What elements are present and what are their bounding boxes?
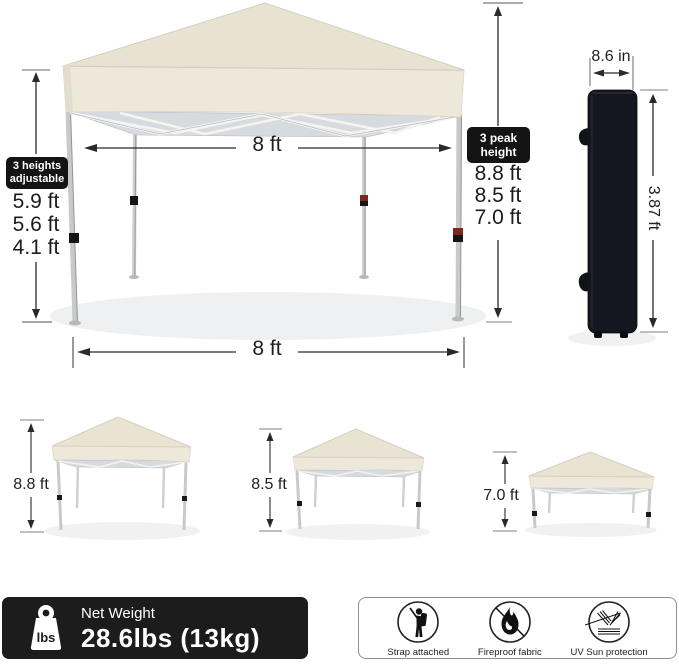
tent-canopy	[63, 3, 464, 70]
small-tent-8-5	[293, 429, 424, 529]
bag-wheel	[594, 331, 602, 338]
uv-reflection-icon	[585, 599, 633, 647]
features-box: Strap attached Fireproof fabric	[358, 597, 677, 659]
feature-label: Fireproof fabric	[478, 648, 542, 658]
canopy-diagram-illustration	[0, 0, 679, 595]
weight-lbs-icon: lbs	[28, 604, 64, 652]
ground-shadows	[44, 292, 657, 540]
net-weight-bar: lbs Net Weight 28.6lbs (13kg)	[2, 597, 308, 659]
feature-label: UV Sun protection	[571, 648, 648, 658]
bag-handle	[579, 272, 589, 291]
strap-person-icon	[394, 599, 442, 647]
leg-adjust-collar-red	[360, 195, 368, 201]
net-weight-title: Net Weight	[81, 605, 260, 622]
peak-height-label: 3 peak height	[467, 127, 530, 163]
feature-strap-attached: Strap attached	[387, 599, 449, 658]
main-tent	[63, 3, 464, 326]
feature-fireproof-fabric: Fireproof fabric	[478, 599, 542, 658]
feature-label: Strap attached	[387, 648, 449, 658]
tent-valance	[63, 66, 464, 117]
small-tent-8-8	[52, 417, 191, 530]
bag-wheel	[620, 331, 628, 338]
carry-bag	[579, 90, 637, 338]
fireproof-flame-icon	[486, 599, 534, 647]
adjustable-height-values: 5.9 ft 5.6 ft 4.1 ft	[1, 190, 71, 259]
bag-width-dimension: 8.6 in	[585, 48, 637, 66]
leg-adjust-collar-red	[453, 228, 463, 235]
small-tent-height-3: 7.0 ft	[477, 487, 525, 505]
svg-text:lbs: lbs	[37, 630, 56, 645]
net-weight-value: 28.6lbs (13kg)	[81, 624, 260, 652]
small-tent-7-0	[529, 452, 654, 528]
width-dimension-top: 8 ft	[237, 133, 297, 156]
small-tent-height-2: 8.5 ft	[245, 476, 293, 494]
feature-uv-protection: UV Sun protection	[571, 599, 648, 658]
bag-handle	[579, 128, 589, 145]
product-diagram: 3 heights adjustable 5.9 ft 5.6 ft 4.1 f…	[0, 0, 679, 665]
bag-height-dimension: 3.87 ft	[644, 178, 662, 238]
peak-height-values: 8.8 ft 8.5 ft 7.0 ft	[463, 163, 533, 229]
small-tent-height-1: 8.8 ft	[7, 476, 55, 494]
width-dimension-bottom: 8 ft	[237, 337, 297, 360]
leg-adjust-collar	[130, 196, 138, 205]
heights-adjustable-label: 3 heights adjustable	[6, 157, 68, 189]
